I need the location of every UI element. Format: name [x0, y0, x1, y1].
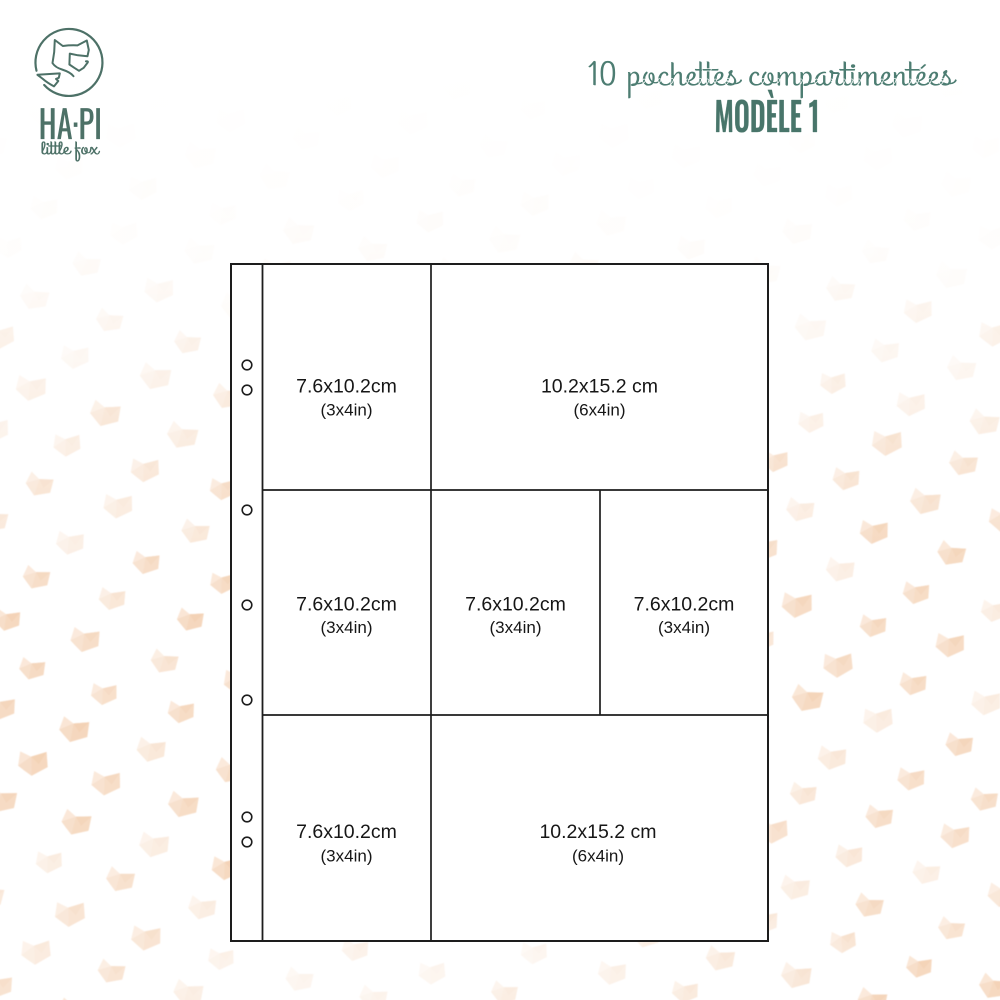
svg-text:(3x4in): (3x4in) [321, 847, 373, 866]
svg-text:10.2x15.2 cm: 10.2x15.2 cm [541, 375, 658, 397]
svg-text:(3x4in): (3x4in) [658, 618, 710, 637]
svg-text:(6x4in): (6x4in) [572, 847, 624, 866]
svg-text:(6x4in): (6x4in) [574, 401, 626, 420]
svg-text:(3x4in): (3x4in) [490, 618, 542, 637]
svg-text:7.6x10.2cm: 7.6x10.2cm [296, 821, 397, 843]
svg-text:7.6x10.2cm: 7.6x10.2cm [296, 375, 397, 397]
svg-text:7.6x10.2cm: 7.6x10.2cm [634, 593, 735, 615]
svg-text:(3x4in): (3x4in) [321, 401, 373, 420]
svg-text:7.6x10.2cm: 7.6x10.2cm [296, 593, 397, 615]
svg-text:(3x4in): (3x4in) [321, 618, 373, 637]
svg-text:7.6x10.2cm: 7.6x10.2cm [465, 593, 566, 615]
svg-text:10.2x15.2 cm: 10.2x15.2 cm [539, 821, 656, 843]
